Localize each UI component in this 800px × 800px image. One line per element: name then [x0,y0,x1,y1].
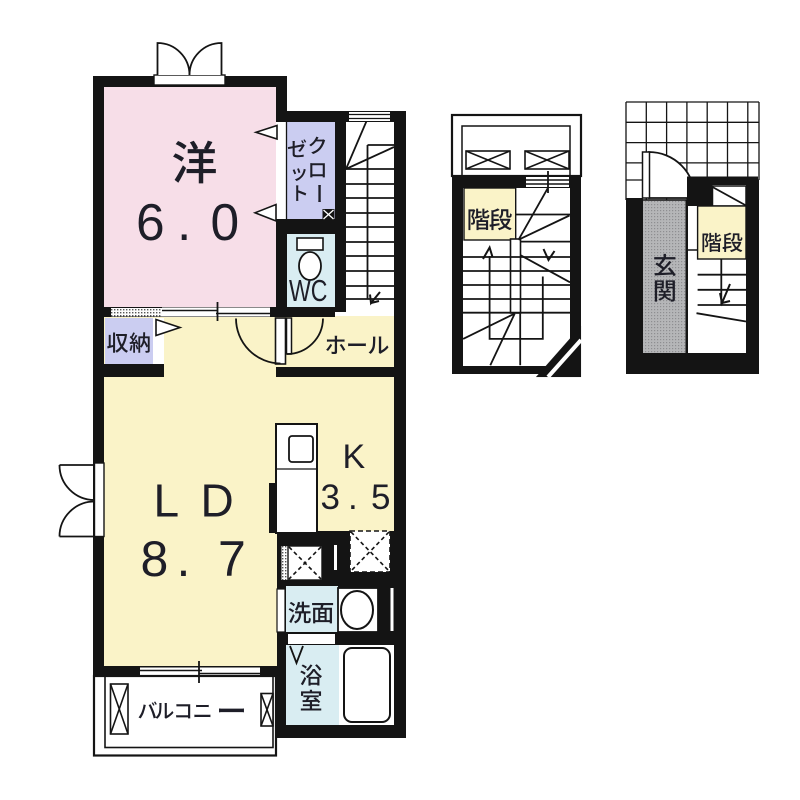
svg-text:WC: WC [289,273,328,308]
svg-text:.: . [177,193,191,251]
svg-text:7: 7 [218,531,246,587]
svg-text:.: . [348,478,358,517]
svg-text:0: 0 [211,193,240,251]
svg-text:L: L [154,474,180,526]
svg-text:.: . [177,531,191,587]
svg-text:K: K [343,438,366,476]
svg-text:3: 3 [321,478,340,517]
svg-text:8: 8 [141,531,169,587]
svg-text:5: 5 [371,478,390,517]
svg-text:6: 6 [136,193,165,251]
svg-text:D: D [201,474,234,526]
